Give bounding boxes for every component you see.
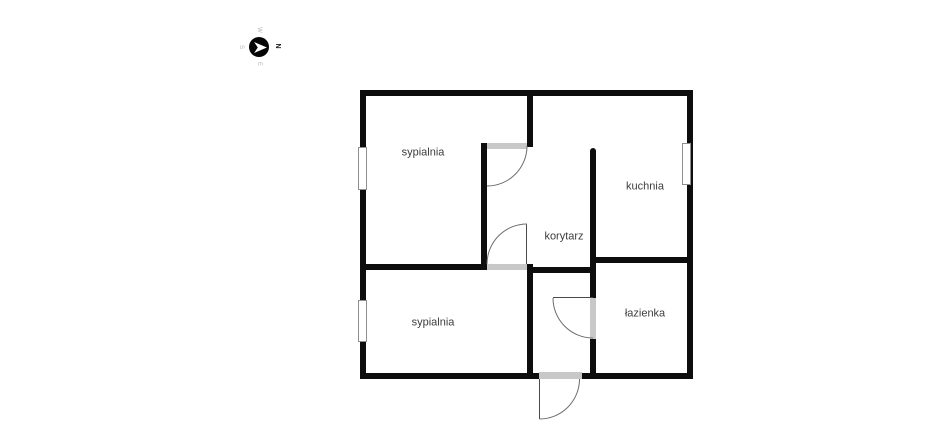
room-label-korytarz: korytarz xyxy=(544,231,583,244)
wall-bedroom1-corridor-upper xyxy=(527,96,533,147)
door-threshold-bathroom xyxy=(590,298,596,339)
floor-plan-canvas: W N E S xyxy=(0,0,950,430)
door-swing-arc-bedroom2 xyxy=(487,224,527,264)
wall-between-bedrooms xyxy=(366,264,481,270)
door-threshold-bedroom1 xyxy=(487,143,527,149)
door-swing-arc-bathroom xyxy=(553,298,593,338)
room-label-sypialnia-2: sypialnia xyxy=(412,317,455,330)
wall-kitchen-corridor xyxy=(590,148,596,267)
window-bedroom2 xyxy=(358,300,367,342)
door-swings xyxy=(0,0,950,430)
wall-bedroom2-corridor xyxy=(527,264,533,373)
door-threshold-bedroom2 xyxy=(487,264,527,270)
room-label-sypialnia-1: sypialnia xyxy=(402,147,445,160)
wall-corridor-vestibule xyxy=(533,267,596,273)
wall-bedroom1-corridor-lower xyxy=(481,143,487,270)
room-label-kuchnia: kuchnia xyxy=(626,181,664,194)
door-swing-arc-bedroom1 xyxy=(487,146,527,186)
room-label-lazienka: łazienka xyxy=(625,308,665,321)
window-bedroom1 xyxy=(358,147,367,190)
outer-wall-right xyxy=(687,90,693,379)
floor-plan: sypialnia kuchnia korytarz sypialnia łaz… xyxy=(0,0,950,430)
wall-bathroom-lower xyxy=(590,339,596,373)
outer-wall-bottom-right xyxy=(582,373,693,379)
door-threshold-entrance xyxy=(539,372,582,379)
wall-bathroom-upper xyxy=(590,267,596,298)
outer-wall-bottom-left xyxy=(360,373,539,379)
wall-kitchen-bathroom xyxy=(590,257,693,263)
window-kitchen xyxy=(682,143,691,185)
door-swing-arc-entrance xyxy=(540,379,580,419)
